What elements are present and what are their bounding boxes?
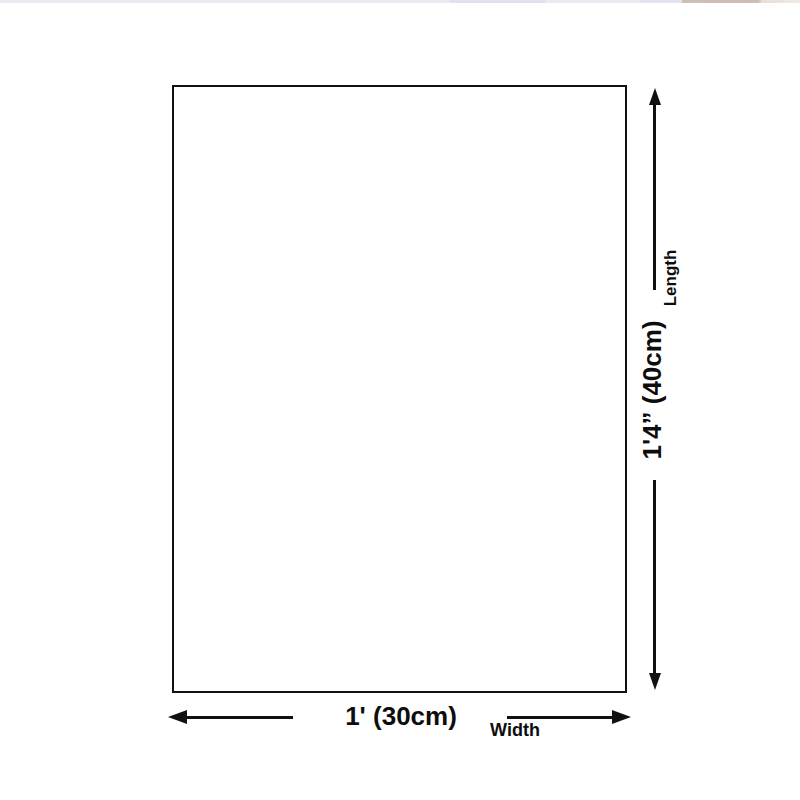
width-line-left [183,716,293,719]
product-outline [172,85,627,693]
length-line-lower [653,480,656,678]
length-line-upper [653,100,656,290]
dimension-diagram: Length 1'4” (40cm) 1' (30cm) Width [0,0,800,800]
width-axis-label: Width [490,720,540,741]
arrow-down-icon [649,673,661,690]
width-value-label: 1' (30cm) [345,701,457,732]
top-edge-strip [0,0,800,3]
length-value-label: 1'4” (40cm) [637,320,668,459]
arrow-right-icon [612,710,631,724]
length-axis-label: Length [661,250,681,307]
